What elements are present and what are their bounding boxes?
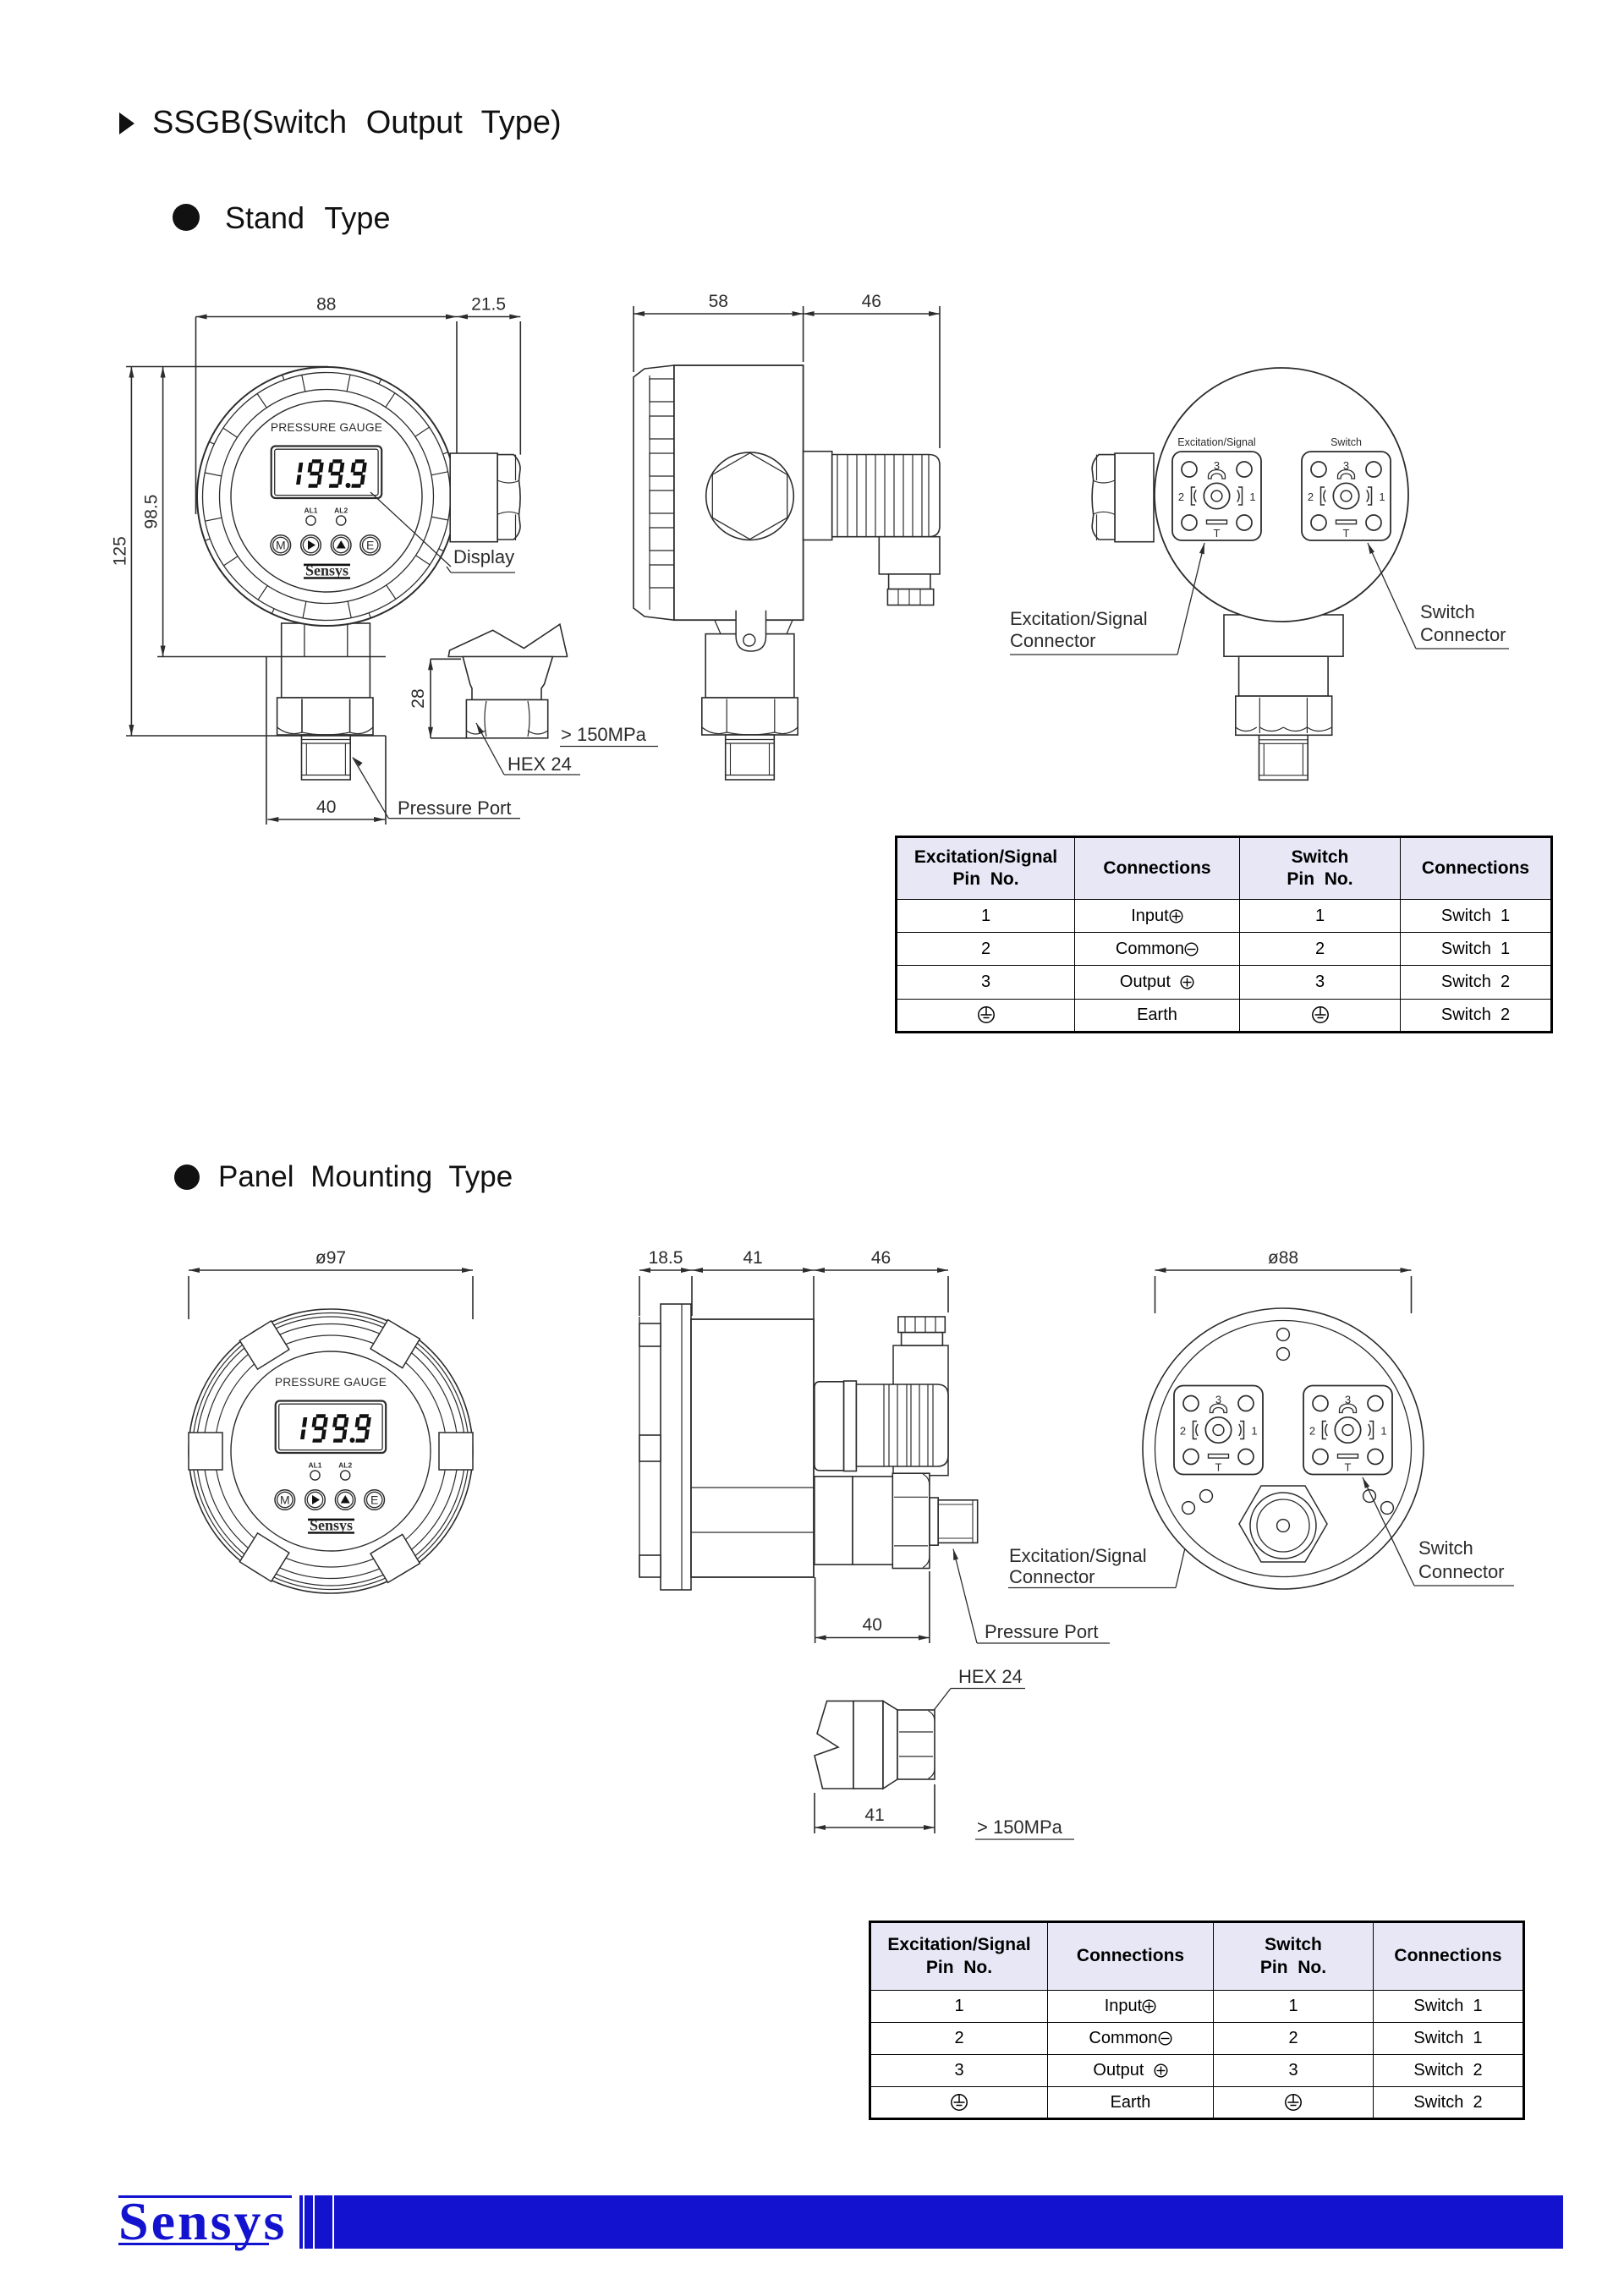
- svg-text:Pressure Port: Pressure Port: [985, 1621, 1099, 1642]
- svg-text:HEX 24: HEX 24: [507, 753, 572, 775]
- svg-text:41: 41: [864, 1806, 884, 1825]
- svg-text:46: 46: [871, 1248, 891, 1268]
- svg-text:> 150MPa: > 150MPa: [977, 1817, 1063, 1838]
- svg-text:Excitation/Signal: Excitation/Signal: [1010, 608, 1148, 629]
- svg-text:Display: Display: [453, 546, 514, 567]
- svg-text:Excitation/Signal: Excitation/Signal: [1177, 436, 1255, 448]
- svg-text:Connector: Connector: [1010, 630, 1096, 651]
- svg-text:HEX 24: HEX 24: [958, 1666, 1023, 1687]
- svg-text:Connector: Connector: [1418, 1561, 1505, 1582]
- svg-text:21.5: 21.5: [471, 295, 506, 315]
- svg-text:Switch: Switch: [1420, 601, 1475, 622]
- svg-text:41: 41: [743, 1248, 762, 1268]
- svg-text:88: 88: [316, 295, 336, 315]
- svg-text:58: 58: [709, 292, 728, 311]
- svg-text:ø97: ø97: [315, 1248, 346, 1268]
- svg-text:18.5: 18.5: [649, 1248, 683, 1268]
- svg-text:125: 125: [110, 536, 129, 566]
- svg-text:40: 40: [863, 1615, 882, 1635]
- svg-text:Connector: Connector: [1009, 1566, 1095, 1587]
- svg-text:ø88: ø88: [1268, 1248, 1298, 1268]
- svg-text:Connector: Connector: [1420, 624, 1506, 645]
- svg-text:28: 28: [409, 688, 428, 708]
- svg-text:Pressure Port: Pressure Port: [398, 797, 512, 819]
- svg-text:> 150MPa: > 150MPa: [561, 724, 647, 745]
- svg-text:46: 46: [862, 292, 881, 311]
- svg-text:Switch: Switch: [1330, 436, 1362, 448]
- svg-text:98.5: 98.5: [142, 495, 162, 529]
- svg-text:Switch: Switch: [1418, 1537, 1473, 1559]
- svg-text:40: 40: [316, 797, 336, 817]
- svg-text:Excitation/Signal: Excitation/Signal: [1009, 1545, 1147, 1566]
